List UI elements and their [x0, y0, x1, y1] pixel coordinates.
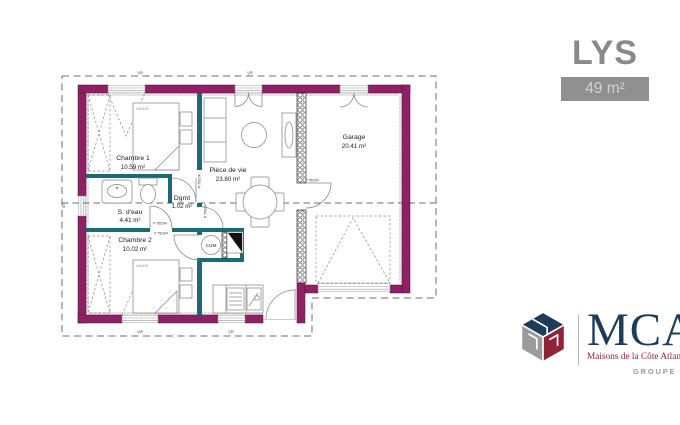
brand-footer: MCA Maisons de la Côte Atlantique GROUPE…	[516, 310, 680, 376]
brand-text: MCA Maisons de la Côte Atlantique GROUPE…	[587, 310, 680, 376]
shutter-tag: VR	[247, 71, 253, 76]
shutter-tag: VR	[137, 330, 143, 335]
window-dim-tag: 60	[62, 204, 66, 208]
brand-group: GROUPE HEXAOM	[633, 367, 680, 376]
area-badge: 49 m²	[561, 77, 649, 101]
door-tag: P 75/204	[153, 222, 167, 226]
room-area-piece-de-vie: 23.80 m²	[216, 176, 240, 183]
room-area-chambre1: 10.59 m²	[121, 164, 145, 171]
bathroom-fixtures	[102, 178, 157, 204]
room-label-sdeau: S. d'eau	[118, 209, 143, 216]
room-area-degagement: 1.02 m²	[172, 203, 193, 210]
water-heater-closet: CUM	[202, 232, 244, 258]
room-label-chambre1: Chambre 1	[116, 155, 150, 162]
brand-divider	[578, 315, 579, 365]
room-label-chambre2: Chambre 2	[118, 237, 152, 244]
room-area-sdeau: 4.41 m²	[120, 217, 141, 224]
door-tag: P 75/204	[154, 232, 168, 236]
room-label-degagement: Dgmt	[174, 195, 190, 202]
shutter-tag: VR	[137, 71, 143, 76]
water-heater-label: CUM	[206, 243, 217, 249]
bed-size-tag: 140x190	[136, 107, 148, 111]
plan-header: LYS 49 m²	[561, 36, 649, 101]
door-tag: P 75/204	[305, 179, 319, 183]
hatched-bearing-wall	[297, 93, 306, 283]
door-tag: P 75/204	[204, 204, 208, 218]
sejour-furniture	[204, 98, 296, 313]
room-label-piece-de-vie: Pièce de vie	[209, 167, 246, 174]
brand-tagline: Maisons de la Côte Atlantique	[587, 352, 680, 362]
floorplan-page: LYS 49 m²	[0, 0, 680, 425]
bed-size-tag: 140x190	[136, 264, 148, 268]
room-area-garage: 20.41 m²	[342, 143, 366, 150]
model-title: LYS	[561, 36, 649, 70]
door-tag: P 75/204	[198, 174, 202, 188]
room-area-chambre2: 10.02 m²	[123, 246, 147, 253]
brand-initials: MCA	[587, 310, 680, 351]
mca-logo-icon	[516, 310, 570, 364]
room-label-garage: Garage	[343, 134, 366, 141]
shutter-tag: VR	[228, 330, 234, 335]
